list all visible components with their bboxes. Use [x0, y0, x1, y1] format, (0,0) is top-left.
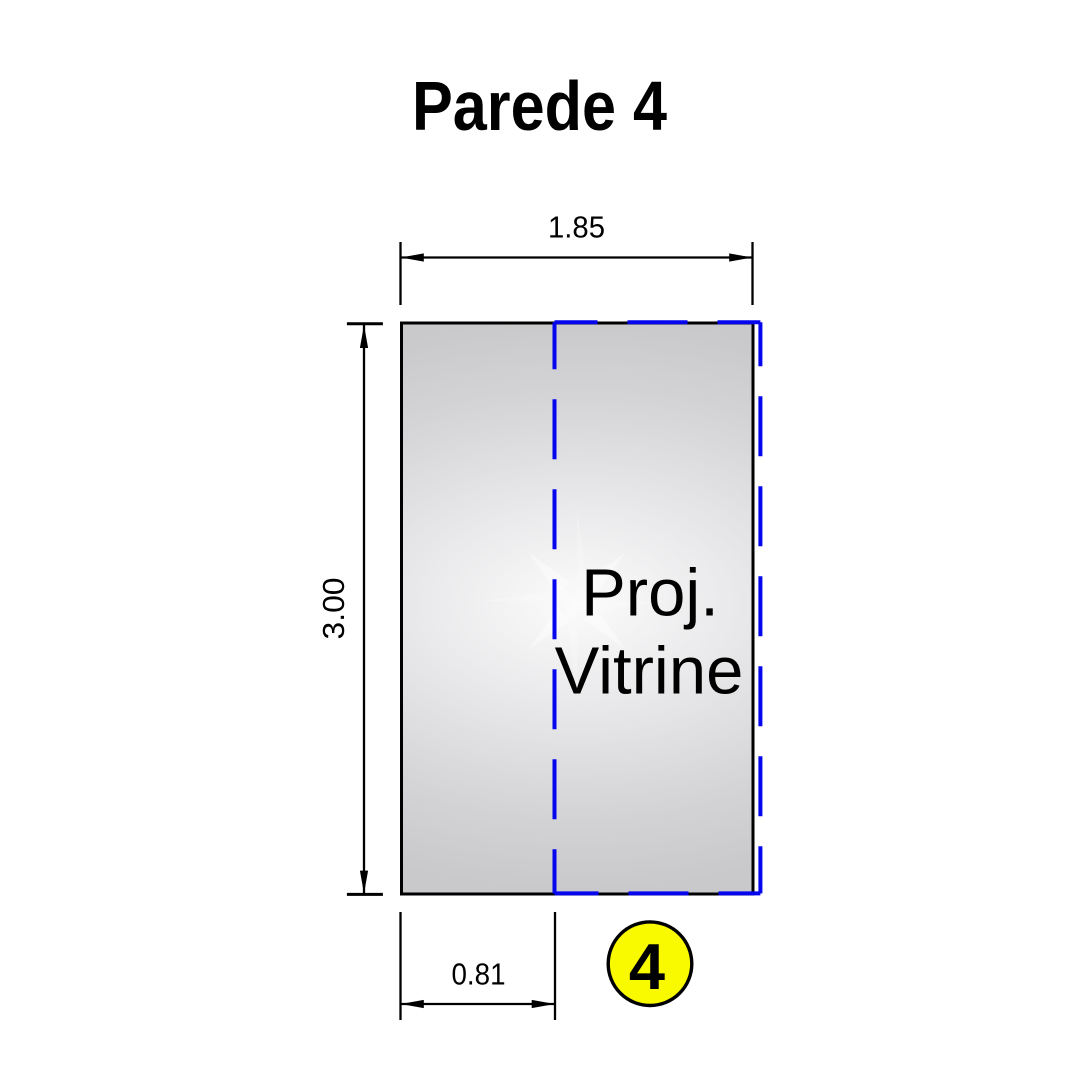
svg-text:4: 4 [629, 930, 665, 1003]
svg-text:1.85: 1.85 [548, 210, 605, 245]
svg-text:3.00: 3.00 [316, 578, 351, 640]
svg-text:Proj.: Proj. [581, 556, 719, 631]
svg-text:0.81: 0.81 [452, 957, 506, 992]
svg-text:Parede 4: Parede 4 [412, 67, 667, 145]
svg-text:Vitrine: Vitrine [555, 634, 744, 709]
